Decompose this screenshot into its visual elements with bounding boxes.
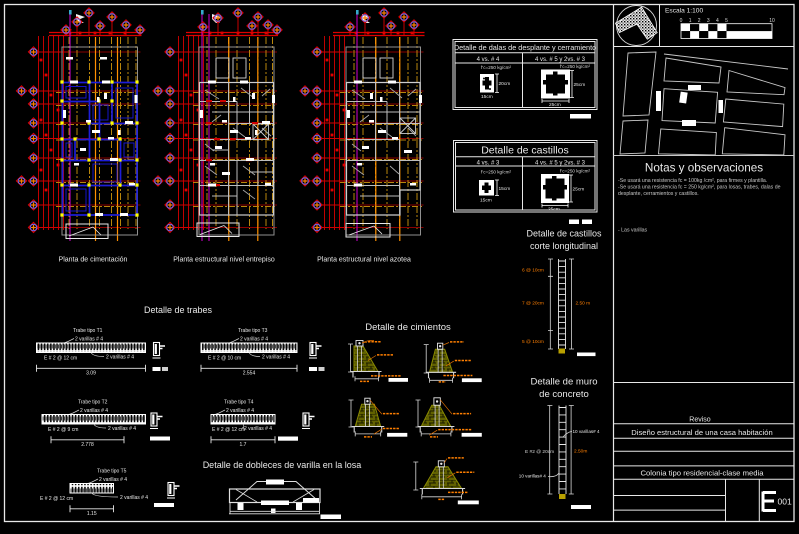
svg-text:0: 0 (680, 18, 683, 24)
svg-text:E # 2 @ 12 cm: E # 2 @ 12 cm (44, 356, 77, 362)
svg-text:2 varillas # 4: 2 varillas # 4 (75, 337, 103, 343)
svg-text:E #2 @ 20cm: E #2 @ 20cm (525, 449, 554, 455)
svg-text:Trabe tipo T5: Trabe tipo T5 (97, 469, 127, 475)
svg-text:Notas y observaciones: Notas y observaciones (645, 162, 763, 175)
svg-text:15cm: 15cm (480, 198, 492, 204)
svg-text:Planta estructural nivel entre: Planta estructural nivel entrepiso (173, 257, 275, 264)
svg-text:1.7: 1.7 (240, 442, 247, 448)
svg-text:20cm: 20cm (499, 81, 511, 87)
svg-text:4 vs. # 4: 4 vs. # 4 (477, 57, 500, 63)
svg-text:2 varillas # 4: 2 varillas # 4 (240, 337, 268, 343)
svg-text:Detalle de dalas de desplante: Detalle de dalas de desplante y cerramie… (454, 43, 596, 52)
svg-text:25cm: 25cm (574, 82, 586, 88)
svg-text:Detalle de trabes: Detalle de trabes (144, 305, 213, 315)
svg-text:Detalle de muro: Detalle de muro (530, 377, 597, 388)
svg-text:Planta estructural nivel azote: Planta estructural nivel azotea (317, 257, 411, 264)
svg-text:Detalle de castillos: Detalle de castillos (526, 229, 602, 239)
svg-text:Colonia tipo residencial-clase: Colonia tipo residencial-clase media (640, 469, 764, 478)
svg-text:25cm: 25cm (573, 187, 585, 193)
svg-text:3: 3 (707, 18, 710, 24)
svg-text:2 varillas # 4: 2 varillas # 4 (106, 355, 134, 361)
svg-text:E # 2 @ 10 cm: E # 2 @ 10 cm (208, 356, 241, 362)
svg-text:6 @ 10cm: 6 @ 10cm (522, 268, 544, 274)
svg-text:Trabe tipo T2: Trabe tipo T2 (78, 400, 108, 406)
svg-text:- Las varillas: - Las varillas (618, 228, 648, 234)
svg-text:2.554: 2.554 (243, 370, 256, 376)
svg-text:f’c=250 kg/cm²: f’c=250 kg/cm² (560, 169, 591, 174)
svg-text:25cm: 25cm (548, 207, 560, 213)
svg-text:Escala 1:100: Escala 1:100 (665, 8, 703, 15)
svg-text:-Se usará una resistencia fc =: -Se usará una resistencia fc = 250 kg/cm… (618, 185, 781, 191)
svg-text:2 varillas # 4: 2 varillas # 4 (120, 495, 148, 501)
svg-text:2 varillas # 4: 2 varillas # 4 (108, 426, 136, 432)
svg-text:Trabe tipo T4: Trabe tipo T4 (224, 400, 254, 406)
svg-text:2 varillas # 4: 2 varillas # 4 (80, 408, 108, 414)
svg-text:E # 2 @ 12 cm: E # 2 @ 12 cm (212, 427, 245, 433)
svg-text:f’c=250 kg/cm²: f’c=250 kg/cm² (560, 64, 591, 69)
svg-text:2 varillas # 4: 2 varillas # 4 (262, 355, 290, 361)
svg-text:2.778: 2.778 (81, 442, 94, 448)
svg-text:Detalle de castillos: Detalle de castillos (481, 145, 569, 157)
svg-text:10 varillas# 4: 10 varillas# 4 (519, 474, 547, 479)
svg-text:25cm: 25cm (549, 102, 561, 108)
svg-text:2: 2 (698, 18, 701, 24)
svg-text:f’c=250 kg/cm²: f’c=250 kg/cm² (481, 65, 512, 70)
svg-text:15cm: 15cm (499, 186, 511, 192)
svg-text:f’c=250 kg/cm²: f’c=250 kg/cm² (481, 170, 512, 175)
svg-text:4: 4 (716, 18, 719, 24)
svg-text:Detalle de cimientos: Detalle de cimientos (365, 322, 451, 333)
svg-text:Diseño estructural de una cas: Diseño estructural de una casa habitació… (631, 428, 772, 437)
svg-text:1: 1 (689, 18, 692, 24)
svg-text:5 @ 10cm: 5 @ 10cm (522, 339, 544, 345)
svg-text:15cm: 15cm (481, 94, 493, 100)
svg-text:desplante, cerramientos y cast: desplante, cerramientos y castillos. (618, 191, 699, 197)
svg-text:de concreto: de concreto (539, 389, 589, 400)
svg-text:3.09: 3.09 (86, 370, 96, 376)
svg-text:Trabe tipo T3: Trabe tipo T3 (238, 328, 268, 334)
svg-text:10 varillas# 4: 10 varillas# 4 (573, 429, 601, 434)
svg-text:2 varillas # 4: 2 varillas # 4 (99, 477, 127, 483)
svg-text:10: 10 (769, 18, 775, 24)
svg-text:-Se usará una resistencia fc =: -Se usará una resistencia fc = 100kg /cm… (618, 178, 767, 184)
svg-text:2 varillas # 4: 2 varillas # 4 (226, 408, 254, 414)
svg-text:2 varillas # 4: 2 varillas # 4 (244, 426, 272, 432)
svg-text:E # 2 @ 9 cm: E # 2 @ 9 cm (48, 427, 78, 433)
svg-text:5: 5 (725, 18, 728, 24)
svg-text:Reviso: Reviso (689, 417, 711, 424)
svg-text:001: 001 (778, 497, 792, 507)
svg-text:Trabe tipo T1: Trabe tipo T1 (73, 328, 103, 334)
svg-text:1.15: 1.15 (87, 511, 97, 517)
svg-text:4 vs. # 5 y 2vs. # 3: 4 vs. # 5 y 2vs. # 3 (535, 57, 586, 63)
svg-text:7 @ 20cm: 7 @ 20cm (522, 301, 544, 307)
svg-text:E # 2 @ 12 cm: E # 2 @ 12 cm (40, 496, 73, 502)
svg-text:2.50 m: 2.50 m (576, 301, 591, 307)
svg-text:corte longitudinal: corte longitudinal (530, 241, 598, 251)
svg-text:Detalle de dobleces de varilla: Detalle de dobleces de varilla en la los… (203, 460, 362, 470)
svg-text:2.50m: 2.50m (574, 449, 587, 455)
svg-text:Planta de cimentación: Planta de cimentación (59, 257, 128, 264)
